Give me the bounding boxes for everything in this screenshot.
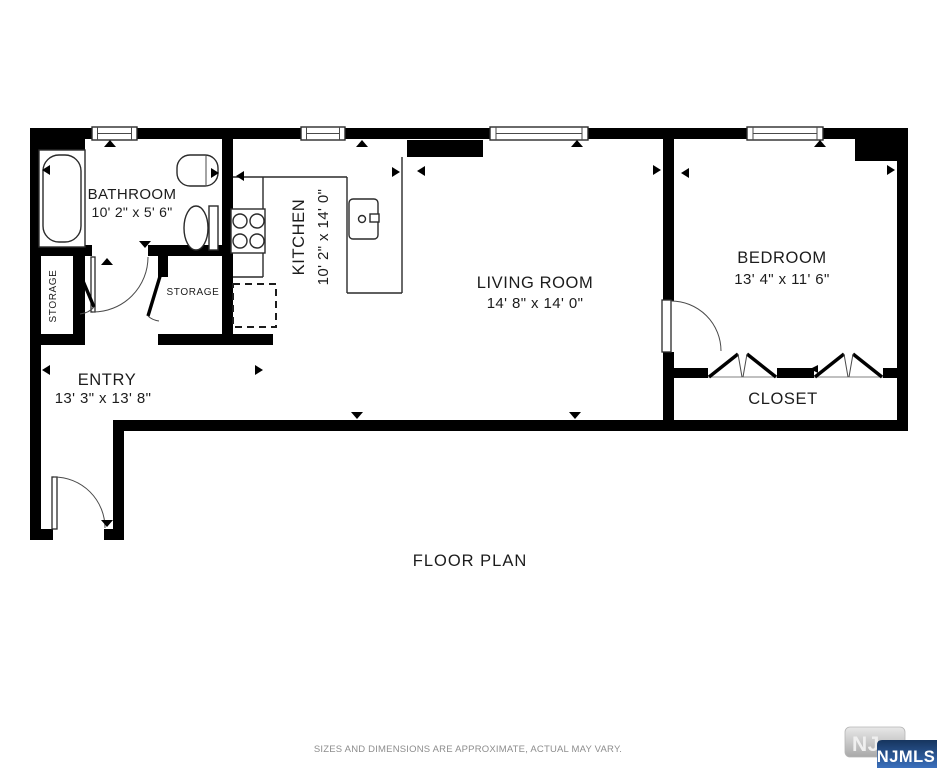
entry-label: ENTRY xyxy=(78,371,137,389)
bedroom-dims: 13' 4" x 11' 6" xyxy=(734,271,830,288)
living-room-dims: 14' 8" x 14' 0" xyxy=(487,295,584,312)
wall-entry-bottom-right xyxy=(104,529,124,540)
floor-plan-drawing: BATHROOM 10' 2" x 5' 6" KITCHEN 10' 2" x… xyxy=(0,0,937,768)
wall-closet-top-a xyxy=(663,368,708,378)
kitchen-sink xyxy=(349,199,379,239)
wall-closet-top-c xyxy=(883,368,908,378)
window-bedroom xyxy=(747,127,823,140)
disclaimer-text: SIZES AND DIMENSIONS ARE APPROXIMATE, AC… xyxy=(314,744,622,755)
bathtub xyxy=(39,150,85,247)
stove xyxy=(231,209,265,253)
window-kitchen xyxy=(301,127,345,140)
entry-dims: 13' 3" x 13' 8" xyxy=(55,390,152,407)
kitchen-dims: 10' 2" x 14' 0" xyxy=(315,189,332,286)
toilet xyxy=(184,206,218,250)
wall-entry-bottom-left xyxy=(30,529,53,540)
wall-kitchen-bottom xyxy=(158,334,273,345)
storage-left-label: STORAGE xyxy=(48,270,59,323)
bathroom-dims: 10' 2" x 5' 6" xyxy=(92,204,173,220)
wall-bottom-main xyxy=(113,420,908,431)
njmls-logo-nj-text: NJ xyxy=(852,733,880,756)
njmls-logo-text: NJMLS xyxy=(877,748,935,766)
wall-block-bedroom xyxy=(855,139,897,161)
floor-plan-page: BATHROOM 10' 2" x 5' 6" KITCHEN 10' 2" x… xyxy=(0,0,937,768)
living-room-label: LIVING ROOM xyxy=(477,274,594,292)
wall-right xyxy=(897,128,908,431)
kitchen-label: KITCHEN xyxy=(290,199,308,276)
canvas-background xyxy=(0,0,937,768)
window-bathroom xyxy=(92,127,137,140)
window-living-room xyxy=(490,127,588,140)
storage-right-label: STORAGE xyxy=(167,287,220,298)
wall-bedroom-lower xyxy=(663,352,674,420)
wall-entry-right xyxy=(113,420,124,540)
plan-title: FLOOR PLAN xyxy=(413,552,528,570)
bathroom-label: BATHROOM xyxy=(88,186,177,203)
wall-bedroom-upper xyxy=(663,128,674,301)
wall-closet-top-b xyxy=(777,368,814,378)
wall-block-living xyxy=(407,140,483,157)
wall-storage-left-bottom xyxy=(30,334,85,345)
bedroom-label: BEDROOM xyxy=(737,249,826,267)
closet-label: CLOSET xyxy=(748,390,818,408)
